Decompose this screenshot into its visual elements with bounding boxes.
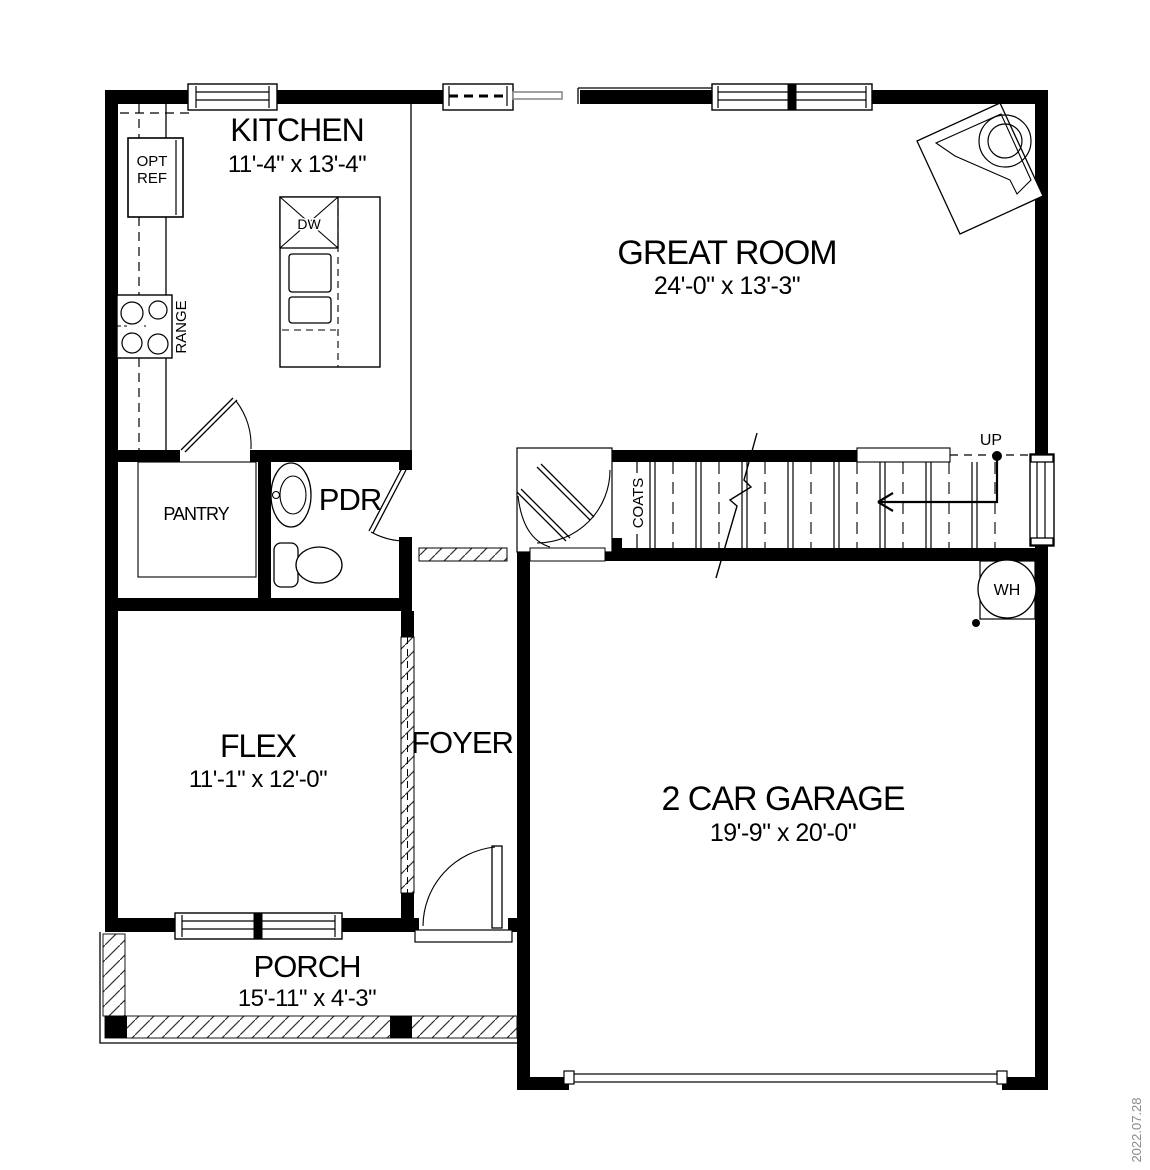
flex-label: FLEX [220, 728, 297, 764]
powder-room-label: PDR [319, 482, 381, 517]
opt-ref-label-line2: REF [137, 170, 167, 187]
exterior-walls [105, 90, 1048, 1090]
flex-dims: 11'-1" x 12'-0" [189, 766, 327, 793]
kitchen-island: DW [280, 197, 380, 367]
porch-label: PORCH [254, 949, 361, 984]
dishwasher: DW [280, 197, 338, 248]
foyer-cased-opening [419, 548, 507, 561]
garage-entry-doorway [530, 548, 605, 561]
pantry-label: PANTRY [163, 504, 229, 524]
optional-sill-line [513, 92, 562, 99]
garage-door [564, 1071, 1007, 1084]
water-heater-label: WH [994, 582, 1021, 599]
stair-landing-rail [857, 448, 950, 462]
range-label: RANGE [173, 300, 190, 353]
great-room-dims: 24'-0" x 13'-3" [654, 272, 800, 300]
pantry-door [181, 398, 251, 452]
up-label: UP [980, 432, 1002, 449]
garage-label: 2 CAR GARAGE [661, 780, 904, 818]
kitchen-dims: 11'-4" x 13'-4" [228, 151, 366, 178]
floor-plan-canvas: OPT REF RANGE DW [0, 0, 1150, 1170]
range: RANGE [117, 295, 190, 358]
cased-openings [401, 548, 507, 893]
stair-treads-solid [650, 462, 977, 548]
coat-closet [517, 448, 612, 561]
foyer-label: FOYER [411, 725, 513, 760]
front-door [415, 846, 512, 942]
date-stamp: 2022.07.28 [1129, 1097, 1144, 1162]
kitchen-label: KITCHEN [230, 112, 363, 148]
great-room-window-left [443, 84, 562, 110]
coats-label: COATS [630, 478, 647, 529]
powder-room-toilet [274, 543, 342, 587]
flex-window [175, 913, 342, 939]
great-room-window-right [712, 84, 872, 110]
stair-side-window [1030, 454, 1054, 546]
water-heater: WH [972, 560, 1036, 627]
corner-fireplace [917, 103, 1043, 234]
floor-plan-page: OPT REF RANGE DW [0, 0, 1150, 1170]
porch-left-edge [103, 934, 125, 1016]
porch-front-edge [105, 1016, 517, 1038]
kitchen-window [188, 84, 277, 110]
dishwasher-label: DW [297, 216, 321, 232]
great-room-label: GREAT ROOM [617, 234, 836, 272]
powder-room-sink [271, 463, 311, 527]
porch-dims: 15'-11" x 4'-3" [238, 985, 376, 1012]
opt-ref-label-line1: OPT [137, 153, 168, 170]
refrigerator: OPT REF [128, 138, 183, 217]
garage-dims: 19'-9" x 20'-0" [710, 819, 856, 847]
